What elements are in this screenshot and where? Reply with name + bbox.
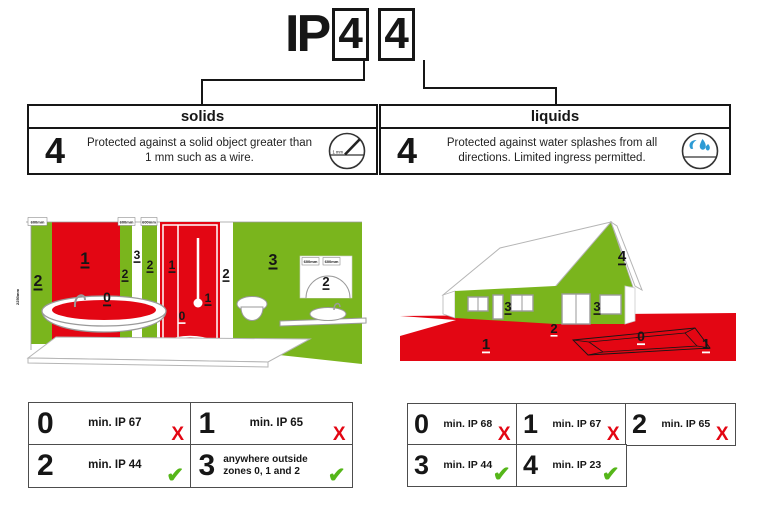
zone-label: 1: [482, 336, 490, 353]
ip-rating-infographic: IP 4 4 solids 4 Protected against a soli…: [0, 0, 758, 505]
cross-icon: X: [607, 425, 620, 444]
check-icon: ✔: [328, 465, 346, 486]
table-cell-zone-2: 2 min. IP 44 ✔: [28, 444, 191, 488]
liquids-digit-box: 4: [378, 8, 415, 61]
right-wall-cap: [625, 286, 635, 324]
water-splash-icon: [679, 130, 721, 172]
solids-header: solids: [29, 106, 376, 129]
check-icon: ✔: [166, 465, 184, 486]
zone-label: 3: [593, 299, 600, 314]
measure-label: 600mm: [31, 220, 45, 225]
measure-label: 600mm: [304, 259, 318, 264]
zone-number: 1: [191, 409, 216, 439]
zone-label: 2: [222, 266, 229, 281]
zone-label: 4: [618, 248, 627, 265]
height-label: 2250mm: [15, 289, 20, 305]
outdoor-zone-table: 0 min. IP 68 X 1 min. IP 67 X 2 min. IP …: [407, 403, 736, 487]
ip-requirement: min. IP 65: [215, 417, 351, 431]
table-cell-zone-0: 0 min. IP 68 X: [407, 403, 518, 446]
cross-icon: X: [171, 425, 184, 444]
cross-icon: X: [333, 425, 346, 444]
zone-number: 4: [517, 452, 538, 479]
ip-prefix: IP: [285, 8, 328, 60]
zone-label: 0: [637, 328, 645, 344]
zone-label: 1: [169, 258, 176, 272]
sink-bowl: [310, 308, 346, 321]
table-cell-zone-0: 0 min. IP 67 X: [28, 402, 191, 446]
table-cell-zone-1: 1 min. IP 67 X: [516, 403, 627, 446]
zone-number: 1: [517, 411, 538, 438]
zone-label: 0: [179, 309, 186, 323]
zone-label: 2: [322, 274, 329, 289]
liquids-description: Protected against water splashes from al…: [433, 136, 671, 166]
check-icon: ✔: [602, 464, 620, 485]
bathroom-floor: [28, 337, 310, 367]
table-cell-zone-3: 3 min. IP 44 ✔: [407, 444, 518, 487]
table-cell-zone-1: 1 min. IP 65 X: [190, 402, 353, 446]
zone-label: 3: [134, 248, 141, 262]
liquids-rating: 4: [381, 133, 433, 169]
zone-number: 0: [29, 409, 54, 439]
measure-label: 600mm: [325, 259, 339, 264]
measure-label: 600mm: [120, 220, 134, 225]
zone-label: 1: [80, 249, 89, 268]
wire-size-label: 1 mm: [333, 150, 344, 155]
zone-number: 3: [191, 451, 216, 481]
zone-label: 0: [103, 289, 111, 305]
liquids-header: liquids: [381, 106, 729, 129]
zone-label: 2: [122, 267, 129, 281]
table-cell-zone-4: 4 min. IP 23 ✔: [516, 444, 627, 487]
zone-number: 2: [29, 451, 54, 481]
cross-icon: X: [716, 425, 729, 444]
connector-lines: [0, 58, 758, 106]
zone-label: 1: [702, 336, 710, 353]
table-cell-zone-2: 2 min. IP 65 X: [625, 403, 736, 446]
solids-rating: 4: [29, 133, 81, 169]
zone-label: 1: [205, 291, 212, 305]
zone-label: 2: [34, 273, 43, 290]
measure-label: 600mm: [142, 220, 156, 225]
side-door: [493, 295, 503, 319]
zone-number: 0: [408, 411, 429, 438]
zone-label: 3: [504, 299, 511, 314]
table-cell-zone-3: 3 anywhere outside zones 0, 1 and 2 ✔: [190, 444, 353, 488]
zone-label: 3: [269, 252, 278, 269]
zone-label: 2: [550, 321, 557, 336]
page-title: IP 4 4: [285, 6, 415, 62]
rear-wall-cap: [443, 291, 455, 318]
check-icon: ✔: [493, 464, 511, 485]
cross-icon: X: [498, 425, 511, 444]
shower-head-icon: [194, 299, 203, 308]
solids-panel: solids 4 Protected against a solid objec…: [27, 104, 378, 175]
shower-enclosure: [160, 222, 220, 350]
window: [600, 295, 621, 314]
house: [443, 222, 642, 324]
liquids-panel: liquids 4 Protected against water splash…: [379, 104, 731, 175]
solids-digit-box: 4: [332, 8, 369, 61]
zone-label: 2: [147, 258, 154, 272]
solids-description: Protected against a solid object greater…: [81, 136, 318, 166]
zone-number: 3: [408, 452, 429, 479]
outdoor-zones-diagram: 1 1 0 2 3 3 4: [398, 203, 738, 368]
bathroom-zones-diagram: 600mm 600mm 600mm 2250mm: [12, 212, 380, 372]
ip-requirement: min. IP 67: [54, 417, 190, 431]
bathroom-zone-table: 0 min. IP 67 X 1 min. IP 65 X 2 min. IP …: [28, 402, 353, 488]
wire-gauge-icon: 1 mm: [326, 130, 368, 172]
zone-number: 2: [626, 411, 647, 438]
